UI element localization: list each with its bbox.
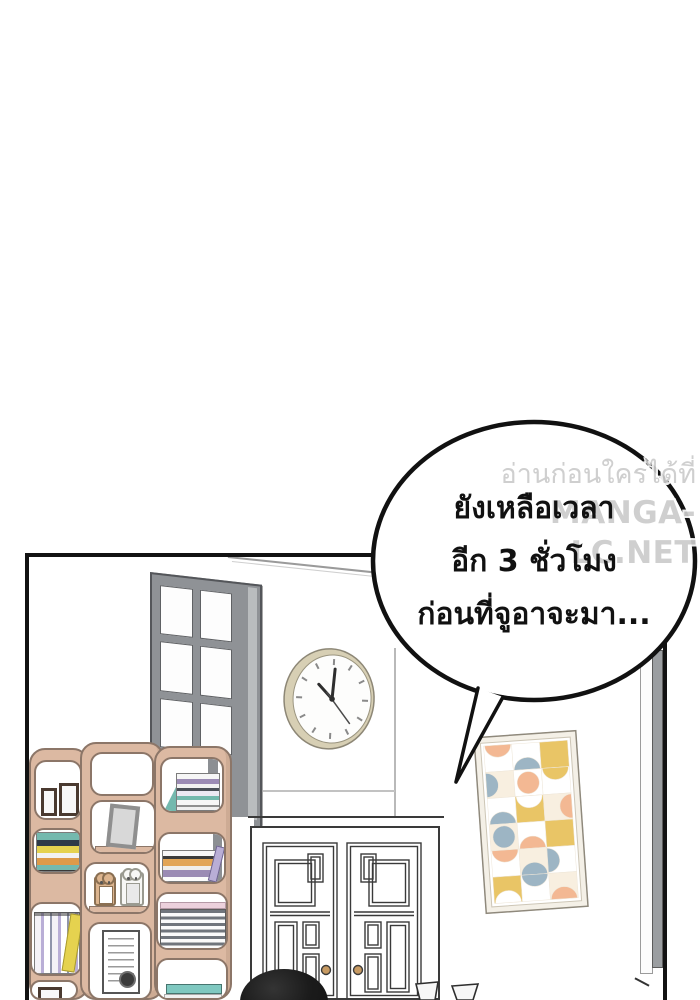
shelf-board	[89, 906, 147, 914]
webtoon-panel-screenshot: ยังเหลือเวลา อีก 3 ชั่วโมง ก่อนที่จูอาจะ…	[0, 0, 700, 1000]
frame-window	[99, 886, 113, 904]
speech-bubble-text: ยังเหลือเวลา อีก 3 ชั่วโมง ก่อนที่จูอาจะ…	[366, 482, 700, 641]
bunny-eye-icon	[135, 877, 138, 880]
certificate-seal	[119, 971, 136, 988]
cup-icon	[452, 984, 478, 1000]
shelf-cell-teal-book	[156, 958, 228, 1000]
shelf-cell-leaning-frame	[90, 800, 156, 854]
bunny-frame-white	[120, 872, 144, 906]
teal-book	[166, 984, 222, 994]
bubble-line-1: ยังเหลือเวลา	[366, 482, 700, 535]
panel-border-left	[25, 553, 29, 1000]
shelf-cell-frames	[34, 760, 82, 820]
cabinet-knob	[322, 966, 331, 975]
bunny-frame-tan	[94, 876, 116, 906]
bubble-line-3: ก่อนที่จูอาจะมา...	[366, 588, 700, 641]
frame-window	[126, 883, 140, 904]
magazine-stack	[160, 909, 226, 949]
cabinet-knob	[354, 966, 363, 975]
cabinet-door-lattice-right	[346, 842, 422, 1000]
photo-frame	[41, 788, 57, 816]
door-pane	[160, 585, 193, 638]
shelf-cell-books-3	[158, 832, 226, 884]
white-book	[164, 994, 222, 1000]
shelf-cell-vertical-books	[30, 902, 82, 976]
shelf-cell-animal-frames	[84, 862, 150, 914]
pink-book	[160, 902, 226, 909]
shelf-cell-magazine-stack	[156, 892, 228, 950]
right-doorframe-tick	[634, 977, 649, 986]
cups	[410, 980, 500, 1000]
shelf-cell-books-1	[160, 757, 224, 813]
shelf-cell-books-2	[32, 828, 82, 874]
book-stack	[36, 832, 80, 872]
bunny-eye-icon	[108, 881, 111, 884]
door-pane	[160, 641, 193, 694]
door-pane	[200, 590, 233, 643]
photo-frame-partial	[38, 987, 62, 1000]
shelf-cell-certificate	[88, 922, 152, 1000]
door-pane	[160, 698, 193, 751]
bunny-eye-icon	[100, 881, 103, 884]
shelf-cell-empty	[90, 752, 154, 796]
cabinet-top-edge	[248, 816, 444, 818]
bubble-line-2: อีก 3 ชั่วโมง	[366, 535, 700, 588]
bunny-eye-icon	[127, 877, 130, 880]
door-edge-face	[248, 587, 257, 820]
cup-icon	[416, 982, 438, 1000]
bookend	[164, 787, 176, 811]
certificate-frame	[102, 930, 140, 994]
shelf-cell-bottom-frame	[30, 980, 78, 1000]
book-stack	[176, 773, 220, 811]
photo-frame	[59, 783, 79, 816]
gray-frame	[106, 804, 140, 850]
door-pane	[200, 646, 233, 699]
